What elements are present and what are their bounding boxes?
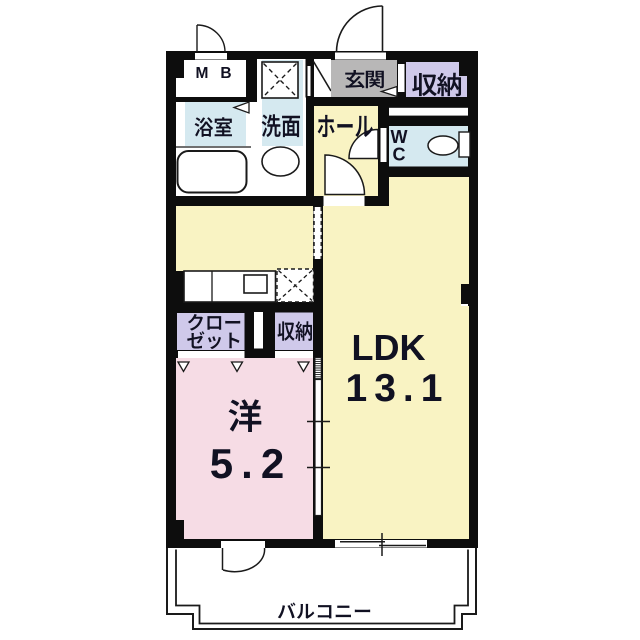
svg-text:C: C [393, 145, 406, 165]
svg-text:MB: MB [195, 65, 243, 82]
svg-text:5.2: 5.2 [210, 440, 292, 487]
svg-text:LDK: LDK [352, 327, 426, 368]
svg-text:13.1: 13.1 [346, 367, 450, 410]
